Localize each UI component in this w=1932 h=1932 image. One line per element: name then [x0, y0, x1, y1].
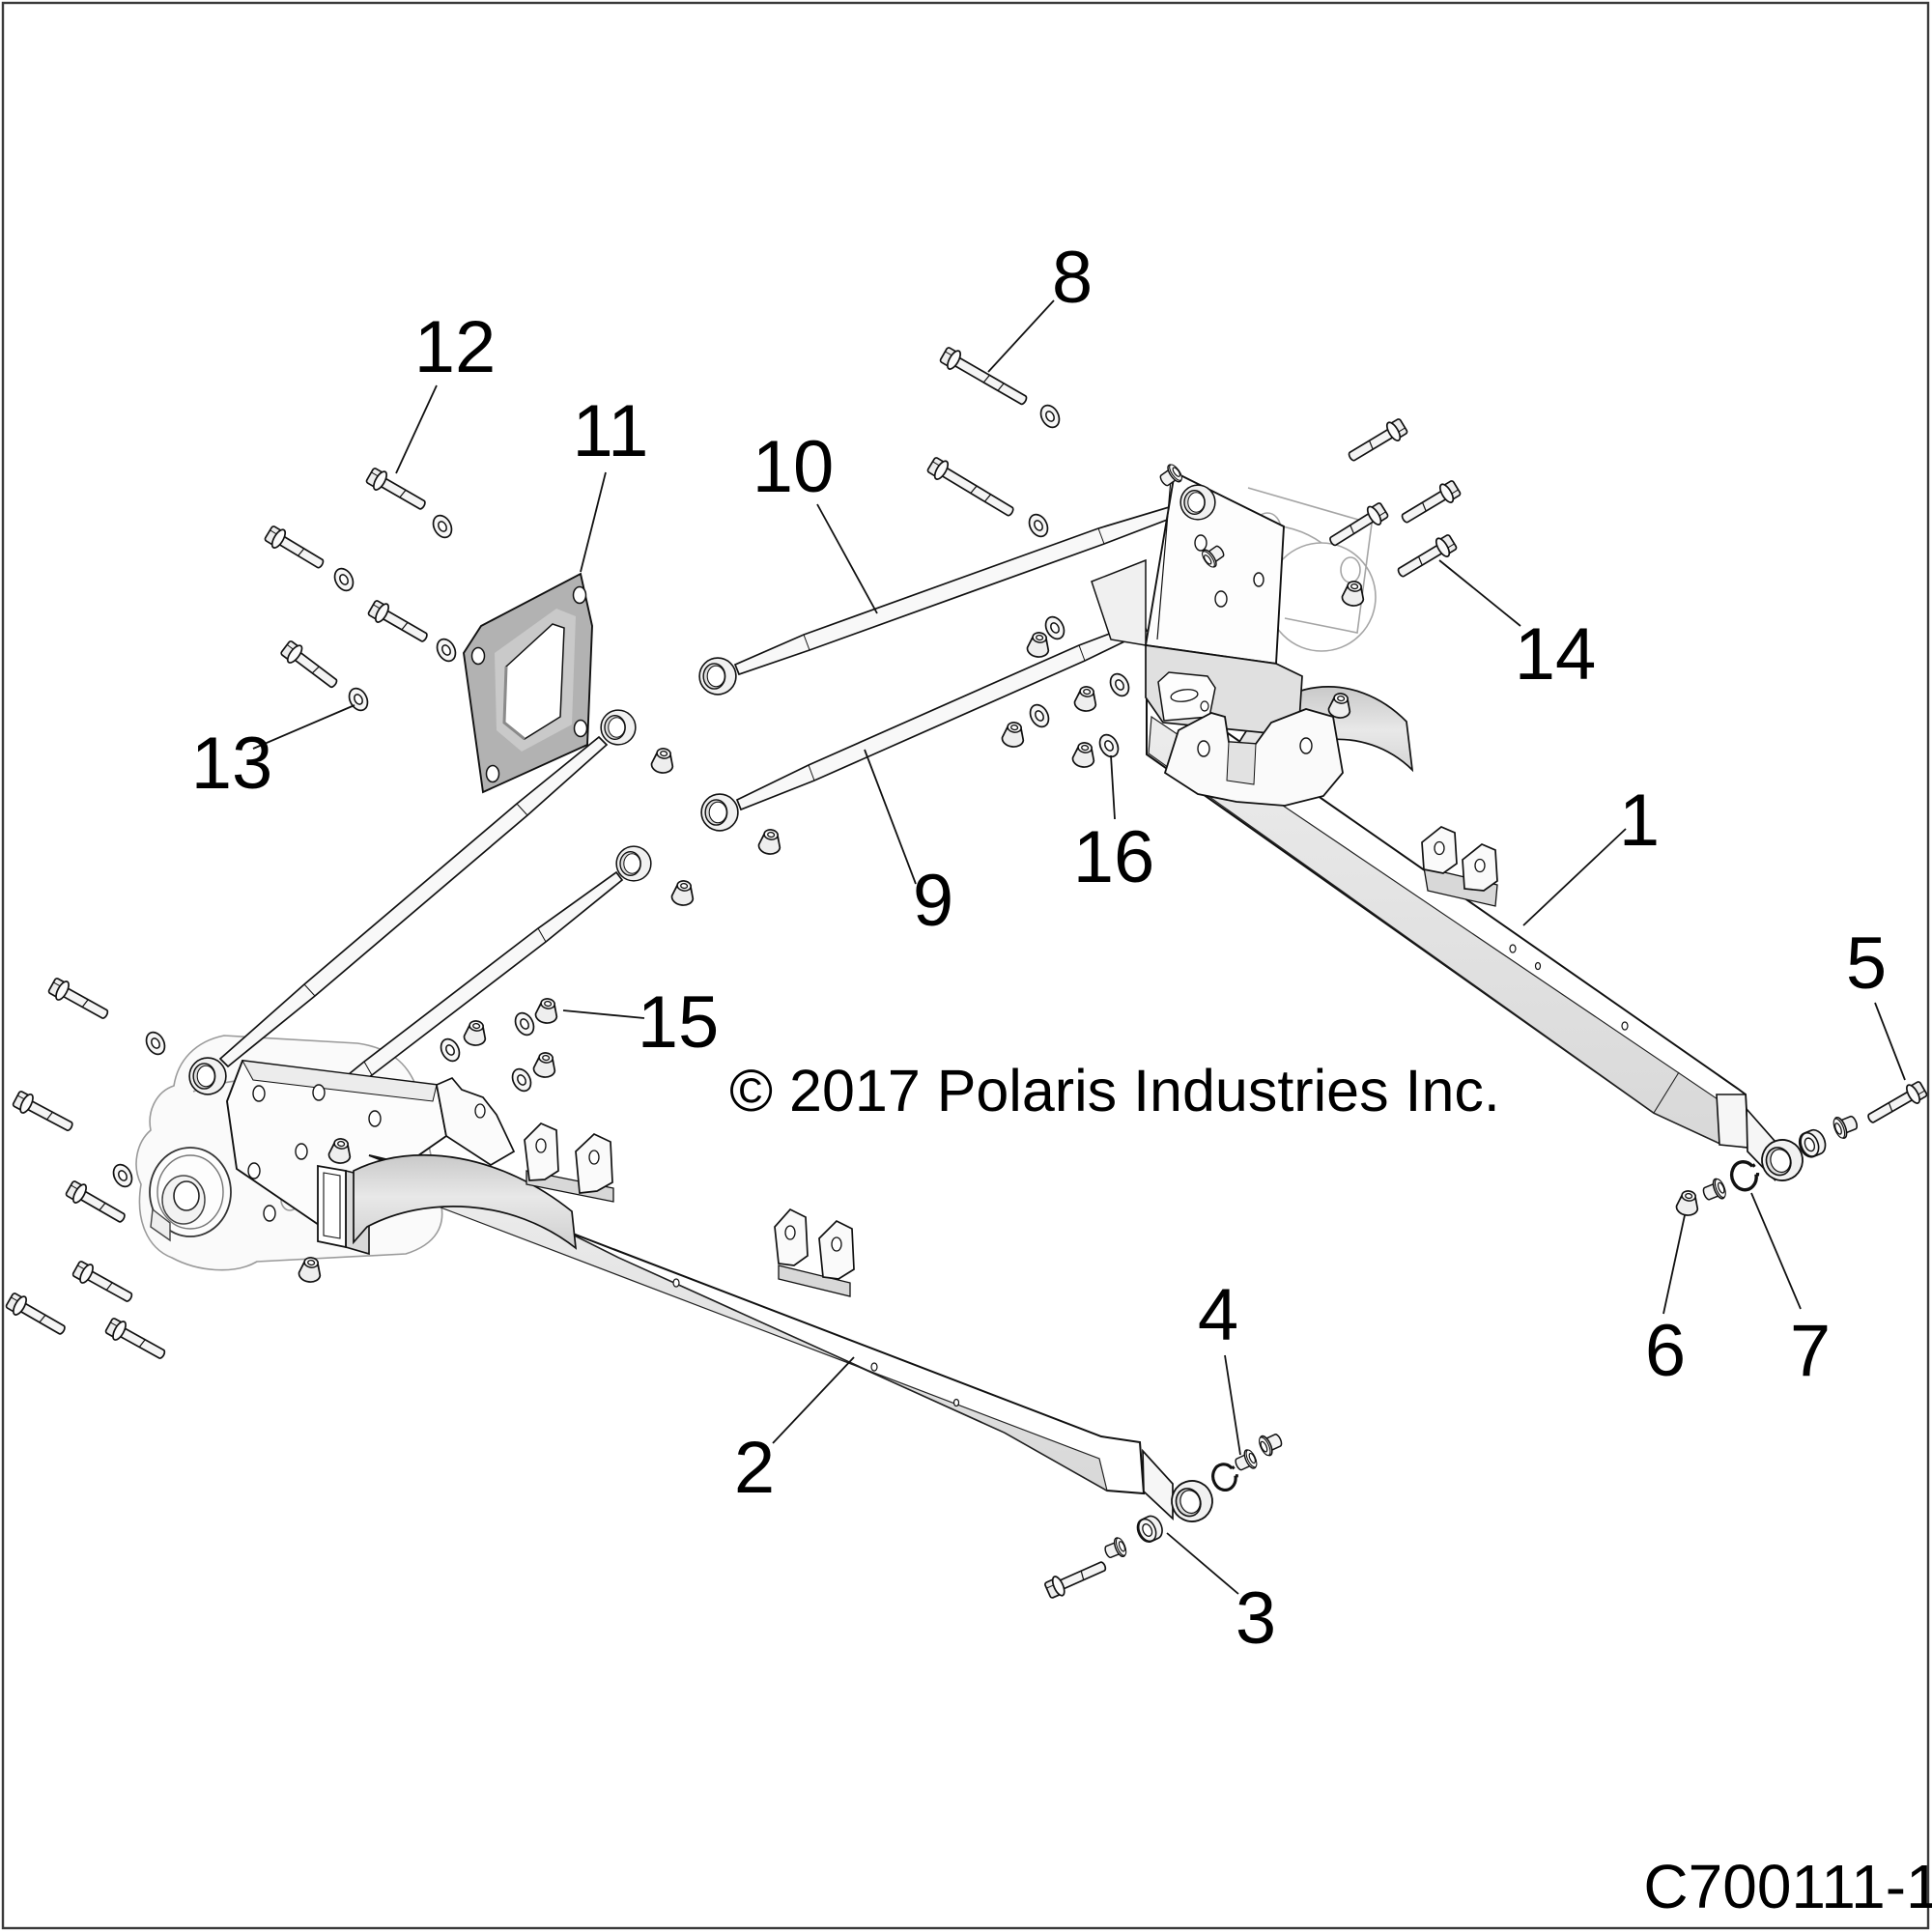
svg-text:14: 14 — [1515, 613, 1597, 696]
svg-text:7: 7 — [1790, 1310, 1831, 1392]
svg-text:© 2017 Polaris Industries Inc.: © 2017 Polaris Industries Inc. — [729, 1058, 1500, 1123]
svg-text:15: 15 — [638, 981, 720, 1064]
svg-text:3: 3 — [1236, 1577, 1276, 1660]
svg-text:5: 5 — [1846, 923, 1887, 1005]
svg-text:9: 9 — [913, 860, 953, 942]
svg-text:6: 6 — [1645, 1310, 1686, 1392]
svg-text:13: 13 — [191, 723, 273, 805]
svg-text:10: 10 — [753, 426, 835, 508]
svg-text:12: 12 — [414, 306, 497, 388]
svg-text:8: 8 — [1052, 237, 1093, 319]
svg-text:11: 11 — [573, 390, 649, 472]
svg-text:1: 1 — [1619, 780, 1660, 862]
svg-text:2: 2 — [734, 1427, 775, 1509]
svg-text:16: 16 — [1073, 816, 1155, 898]
svg-text:4: 4 — [1198, 1274, 1238, 1356]
svg-text:C700111-1: C700111-1 — [1643, 1852, 1932, 1921]
